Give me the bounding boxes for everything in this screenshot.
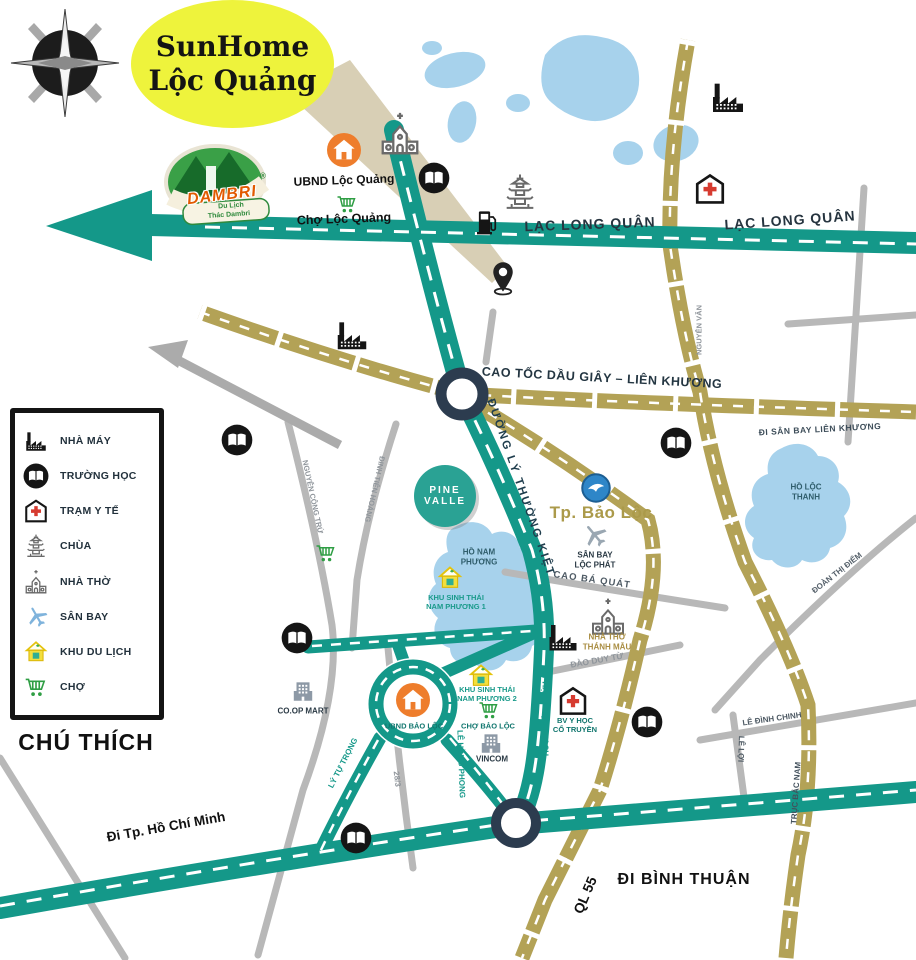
callout-line1: SunHome bbox=[156, 30, 310, 64]
legend-label: CHỢ bbox=[60, 681, 85, 693]
ubnd-bao-loc-marker-icon bbox=[396, 683, 430, 717]
school-icon bbox=[282, 623, 313, 654]
location-pin-icon bbox=[493, 262, 513, 294]
road-label-le-loi: LÊ LỢI bbox=[736, 736, 746, 763]
lake-top-large bbox=[541, 35, 639, 121]
road-label-di-binh-thuan: ĐI BÌNH THUẬN bbox=[618, 871, 751, 889]
legend-box: NHÀ MÁY TRƯỜNG HỌC TRẠM Y TẾ CHÙA NHÀ TH… bbox=[10, 408, 164, 720]
school-icon bbox=[222, 425, 253, 456]
place-label-bv-y-hoc: BV Y HỌC CỔ TRUYỀN bbox=[553, 716, 597, 734]
map-canvas: SunHome Lộc Quảng DAMBRI ® Du Lịch Thác … bbox=[0, 0, 916, 960]
market-icon bbox=[480, 703, 497, 718]
label-line: NHÀ THỜ bbox=[583, 632, 631, 642]
project-callout: SunHome Lộc Quảng bbox=[131, 0, 334, 128]
label-line: NAM PHƯƠNG 1 bbox=[426, 602, 486, 611]
pagoda-icon bbox=[507, 175, 534, 208]
place-label-nha-tho-thanh-mau: NHÀ THỜ THÁNH MẪU bbox=[583, 632, 631, 651]
place-label-khu-sinh-thai-1: KHU SINH THÁI NAM PHƯƠNG 1 bbox=[426, 593, 486, 611]
market-icon bbox=[338, 197, 355, 212]
legend-title: CHÚ THÍCH bbox=[18, 729, 154, 755]
road-stub bbox=[486, 312, 493, 362]
resort-icon bbox=[23, 639, 49, 665]
dambri-registered-mark: ® bbox=[260, 172, 266, 181]
pagoda-icon bbox=[23, 533, 49, 559]
label-line: SÂN BAY bbox=[575, 550, 616, 560]
road-cao-toc bbox=[200, 312, 916, 412]
road-dinh-tien-hoang bbox=[352, 424, 396, 648]
airport-icon bbox=[579, 519, 611, 551]
school-icon bbox=[632, 707, 663, 738]
school-icon bbox=[419, 163, 450, 194]
road-arrow-west bbox=[46, 190, 152, 261]
lake-top-3 bbox=[444, 99, 480, 146]
road-di-tp-hcm bbox=[0, 792, 916, 908]
label-line: NAM PHƯƠNG 2 bbox=[457, 694, 517, 703]
junction-circle-north bbox=[441, 373, 483, 415]
coop-mart-building-icon bbox=[294, 682, 312, 700]
clinic-icon bbox=[561, 688, 585, 713]
legend-label: TRẠM Y TẾ bbox=[60, 505, 119, 517]
legend-item-resort: KHU DU LỊCH bbox=[23, 639, 151, 665]
school-icon bbox=[661, 428, 692, 459]
compass-rose-icon bbox=[11, 9, 119, 117]
road-label-nguyen-van: NGUYỄN VĂN bbox=[696, 305, 705, 355]
church-icon bbox=[592, 599, 624, 634]
place-label-tp-bao-loc: Tp. Bảo Lộc bbox=[550, 503, 653, 523]
pine-valle-line2: VALLE bbox=[424, 496, 466, 507]
market-icon bbox=[23, 674, 49, 700]
place-label-ho-loc-thanh: HỒ LỘC THANH bbox=[790, 482, 821, 501]
junction-circle-south bbox=[496, 803, 536, 843]
spoke-north bbox=[397, 642, 404, 662]
label-line: LỘC PHÁT bbox=[575, 560, 616, 570]
lake-top-7 bbox=[422, 41, 442, 55]
legend-item-church: NHÀ THỜ bbox=[23, 569, 151, 595]
label-line: CỔ TRUYỀN bbox=[553, 725, 597, 734]
label-line: BV Y HỌC bbox=[553, 716, 597, 725]
road-grid-horizontal bbox=[788, 315, 916, 324]
airport-icon bbox=[18, 599, 54, 635]
road-bottom-left bbox=[0, 758, 125, 958]
legend-item-clinic: TRẠM Y TẾ bbox=[23, 498, 151, 524]
label-line: HỒ NAM bbox=[461, 547, 498, 557]
label-line: HỒ LỘC bbox=[790, 482, 821, 492]
church-icon bbox=[23, 569, 49, 595]
factory-icon bbox=[713, 84, 743, 112]
pine-valle-badge: PINE VALLE bbox=[414, 465, 476, 527]
place-label-ho-nam-phuong: HỒ NAM PHƯƠNG bbox=[461, 547, 498, 566]
legend-item-market: CHỢ bbox=[23, 674, 151, 700]
clinic-icon bbox=[697, 176, 723, 203]
place-label-cho-bao-loc: CHỢ BẢO LỘC bbox=[461, 723, 515, 732]
label-line: KHU SINH THÁI bbox=[457, 685, 517, 694]
legend-label: NHÀ THỜ bbox=[60, 576, 111, 588]
vincom-building-icon bbox=[482, 734, 500, 752]
factory-icon bbox=[23, 428, 49, 454]
road-label-28-3: 28/3 bbox=[391, 771, 402, 788]
clinic-icon bbox=[23, 498, 49, 524]
factory-icon bbox=[550, 625, 577, 651]
school-icon bbox=[23, 463, 49, 489]
legend-item-pagoda: CHÙA bbox=[23, 533, 151, 559]
legend-item-factory: NHÀ MÁY bbox=[23, 428, 151, 454]
label-line: THÁNH MẪU bbox=[583, 642, 631, 652]
factory-icon bbox=[338, 322, 367, 349]
place-label-ubnd-bao-loc: UBND BẢO LỘC bbox=[385, 723, 443, 732]
legend-label: SÂN BAY bbox=[60, 611, 108, 623]
legend-item-school: TRƯỜNG HỌC bbox=[23, 463, 151, 489]
callout-line2: Lộc Quảng bbox=[149, 64, 317, 98]
legend-label: TRƯỜNG HỌC bbox=[60, 470, 137, 482]
school-icon bbox=[341, 823, 372, 854]
legend-label: KHU DU LỊCH bbox=[60, 646, 132, 658]
lake-top-4 bbox=[506, 94, 530, 112]
tp-bao-loc-logo-icon bbox=[582, 474, 610, 502]
pine-valle-line1: PINE bbox=[429, 485, 460, 496]
legend-label: NHÀ MÁY bbox=[60, 435, 111, 447]
place-label-coop-mart: CO.OP MART bbox=[278, 706, 329, 715]
legend-item-airport: SÂN BAY bbox=[23, 604, 151, 630]
legend-label: CHÙA bbox=[60, 540, 92, 552]
place-label-san-bay-loc-phat: SÂN BAY LỘC PHÁT bbox=[575, 550, 616, 569]
place-label-vincom: VINCOM bbox=[476, 754, 508, 763]
lake-top-5 bbox=[613, 141, 643, 165]
ubnd-loc-quang-marker-icon bbox=[327, 133, 361, 167]
label-line: PHƯƠNG bbox=[461, 557, 498, 567]
label-line: THANH bbox=[790, 492, 821, 502]
place-label-khu-sinh-thai-2: KHU SINH THÁI NAM PHƯƠNG 2 bbox=[457, 685, 517, 703]
label-line: KHU SINH THÁI bbox=[426, 593, 486, 602]
road-label-pham-ngoc-thach: PHẠM NGỌC THẠCH bbox=[540, 676, 549, 756]
lake-ho-loc-thanh bbox=[745, 444, 850, 568]
road-nguyen-cong-tru bbox=[258, 422, 333, 955]
